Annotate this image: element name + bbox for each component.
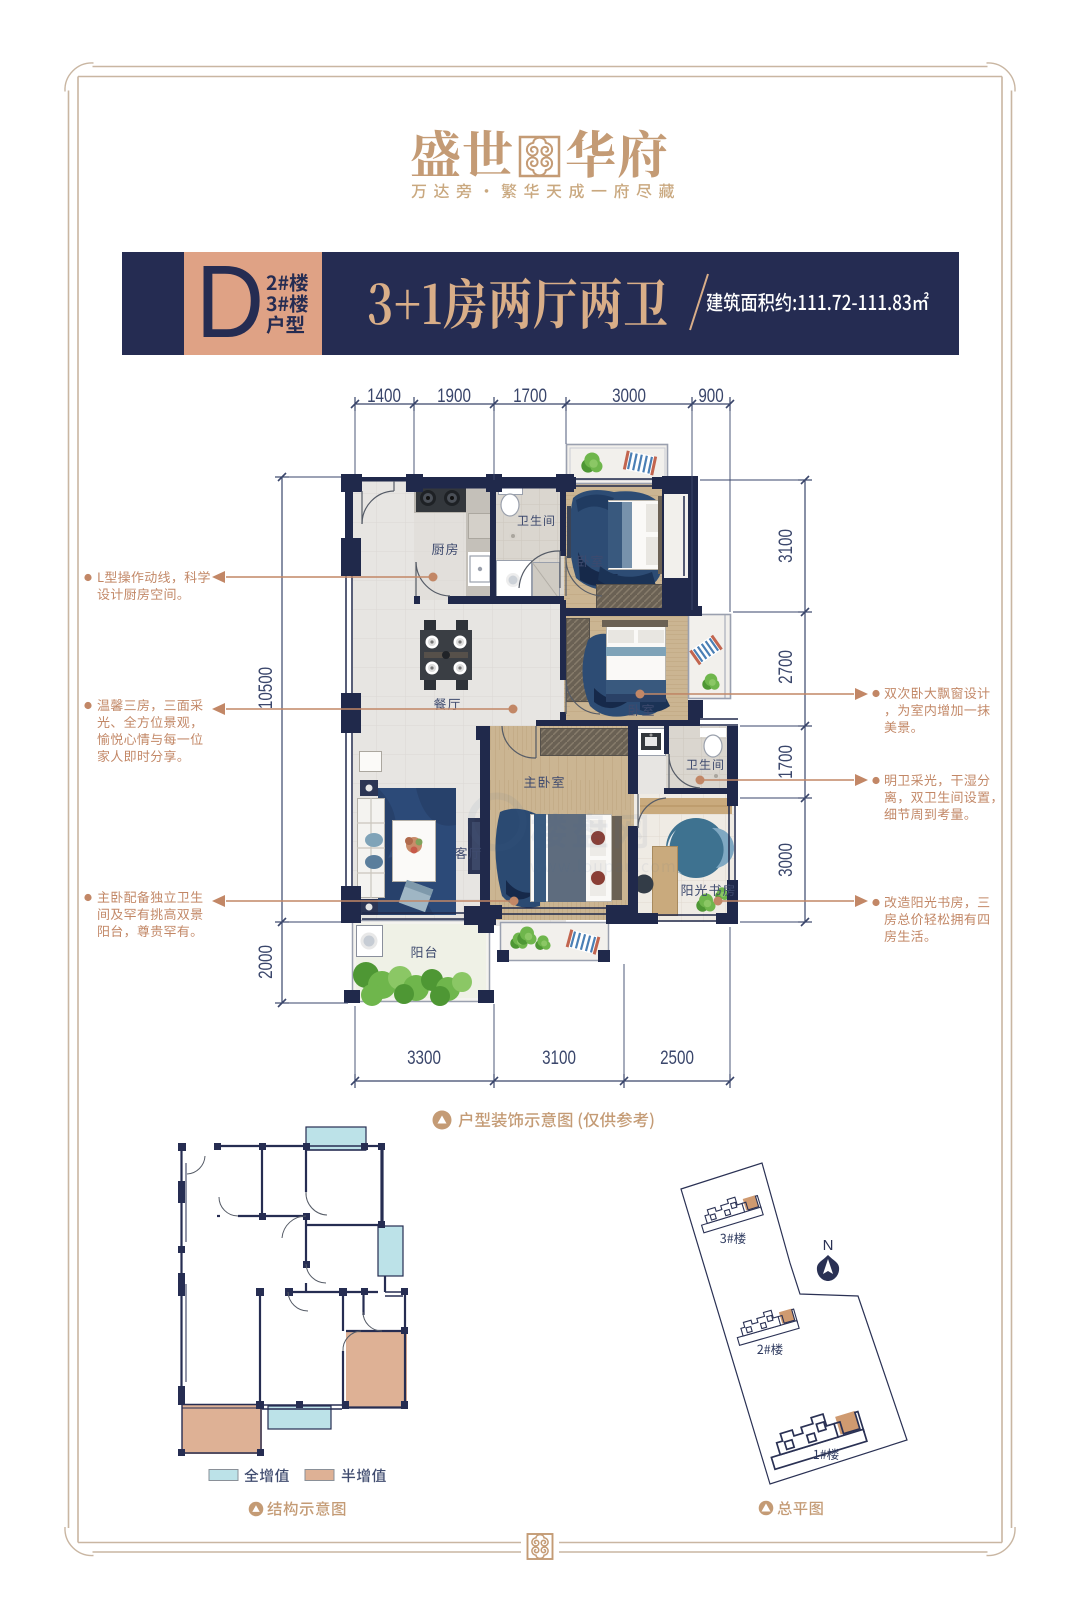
svg-text:1400: 1400 bbox=[367, 384, 401, 406]
svg-text:1700: 1700 bbox=[774, 745, 796, 779]
svg-text:10500: 10500 bbox=[254, 667, 276, 709]
svg-text:2500: 2500 bbox=[660, 1046, 694, 1068]
svg-text:2700: 2700 bbox=[774, 650, 796, 684]
svg-text:2000: 2000 bbox=[254, 945, 276, 979]
svg-text:3000: 3000 bbox=[612, 384, 646, 406]
svg-text:3100: 3100 bbox=[774, 529, 796, 563]
svg-text:D: D bbox=[196, 243, 264, 359]
svg-text:3000: 3000 bbox=[774, 843, 796, 877]
svg-text:N: N bbox=[823, 1237, 834, 1254]
svg-text:1700: 1700 bbox=[513, 384, 547, 406]
svg-text:3100: 3100 bbox=[542, 1046, 576, 1068]
svg-text:1900: 1900 bbox=[437, 384, 471, 406]
svg-text:900: 900 bbox=[698, 384, 724, 406]
svg-text:3300: 3300 bbox=[407, 1046, 441, 1068]
